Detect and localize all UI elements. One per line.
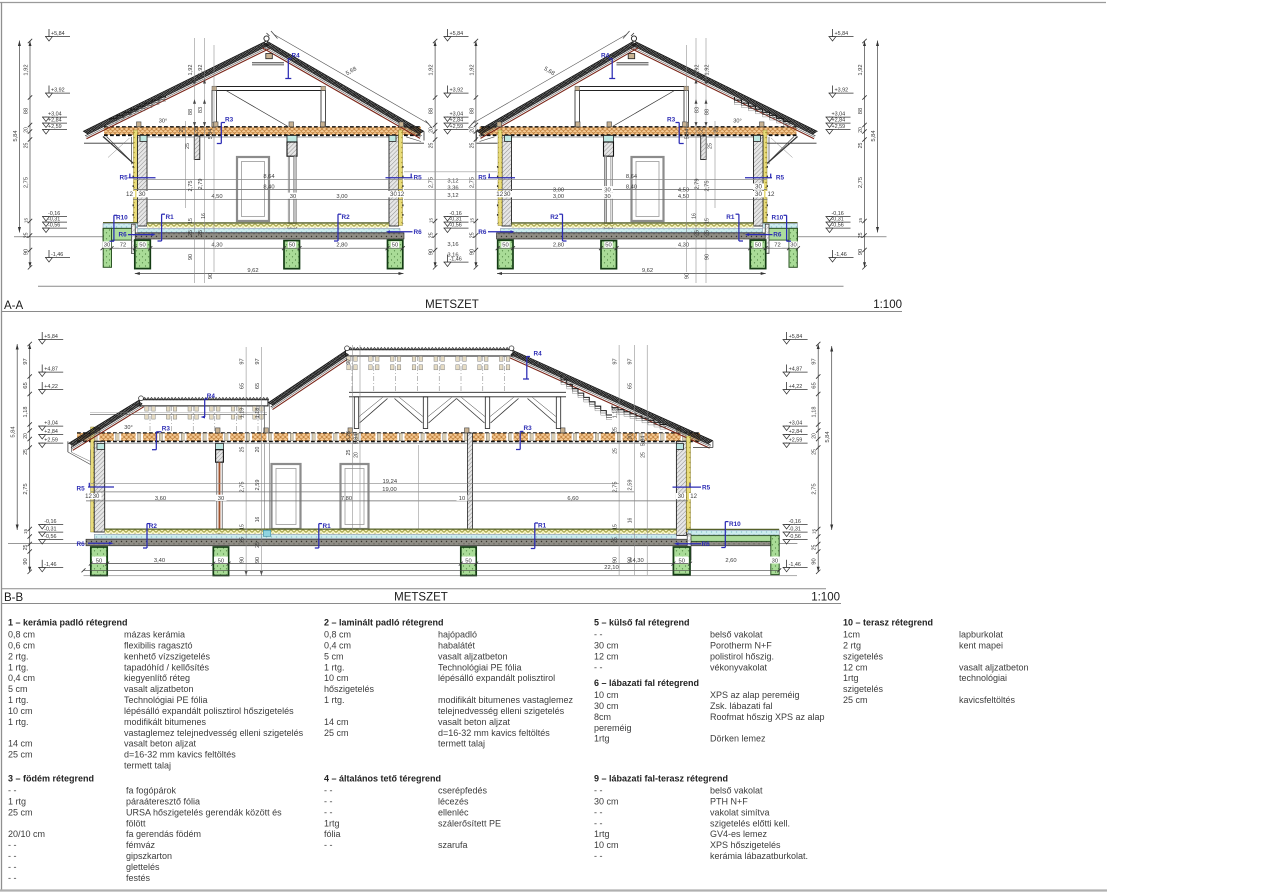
svg-text:- -: - - (8, 840, 17, 850)
svg-text:1 rtg.: 1 rtg. (324, 695, 345, 705)
svg-text:- -: - - (8, 873, 17, 883)
svg-text:R4: R4 (534, 350, 543, 357)
svg-text:Technológiai PE fólia: Technológiai PE fólia (438, 662, 522, 672)
svg-text:2,75: 2,75 (23, 177, 29, 188)
svg-text:R1: R1 (166, 214, 175, 221)
svg-text:R6: R6 (773, 232, 782, 239)
svg-text:25: 25 (812, 545, 818, 551)
svg-text:URSA hőszigetelés gerendák köz: URSA hőszigetelés gerendák között és (126, 807, 282, 817)
svg-text:3,12: 3,12 (447, 193, 458, 199)
svg-text:pereméig: pereméig (594, 723, 632, 733)
svg-text:50: 50 (139, 243, 145, 249)
svg-text:10 cm: 10 cm (324, 673, 349, 683)
svg-text:1rtg: 1rtg (594, 734, 610, 744)
svg-text:97: 97 (812, 358, 818, 364)
svg-text:3,00: 3,00 (336, 194, 347, 200)
svg-text:25 cm: 25 cm (8, 807, 33, 817)
svg-text:30: 30 (104, 243, 110, 249)
svg-text:R10: R10 (772, 215, 784, 222)
svg-text:2,60: 2,60 (725, 558, 736, 564)
svg-text:vasalt aljzatbeton: vasalt aljzatbeton (959, 662, 1029, 672)
svg-text:5,84: 5,84 (208, 129, 214, 140)
svg-text:R1: R1 (538, 523, 547, 530)
svg-text:19,24: 19,24 (383, 479, 398, 485)
svg-text:16: 16 (201, 213, 207, 219)
svg-text:15: 15 (613, 524, 619, 530)
svg-text:16: 16 (628, 518, 634, 524)
svg-text:90: 90 (23, 249, 29, 255)
svg-text:-1,46: -1,46 (51, 252, 63, 258)
svg-text:2,79: 2,79 (198, 179, 204, 190)
svg-text:25: 25 (240, 447, 246, 453)
svg-text:technológiai: technológiai (959, 673, 1007, 683)
svg-text:25: 25 (707, 143, 713, 149)
svg-text:15: 15 (429, 218, 435, 224)
svg-text:30 cm: 30 cm (594, 796, 619, 806)
svg-text:25: 25 (613, 427, 619, 433)
svg-text:20: 20 (23, 433, 29, 439)
svg-text:50: 50 (392, 243, 398, 249)
svg-text:25: 25 (255, 542, 261, 548)
svg-text:PTH N+F: PTH N+F (710, 796, 748, 806)
svg-text:25: 25 (613, 537, 619, 543)
svg-text:25 cm: 25 cm (843, 695, 868, 705)
svg-text:6,60: 6,60 (567, 496, 578, 502)
svg-text:25: 25 (23, 232, 29, 238)
svg-text:cserépfedés: cserépfedés (438, 786, 488, 796)
svg-text:90: 90 (685, 273, 691, 279)
svg-text:R5: R5 (120, 174, 129, 181)
svg-text:20: 20 (858, 127, 864, 133)
svg-text:20/10 cm: 20/10 cm (8, 829, 45, 839)
svg-text:1 rtg: 1 rtg (8, 796, 26, 806)
svg-text:97: 97 (240, 358, 246, 364)
svg-text:belső vakolat: belső vakolat (710, 786, 763, 796)
svg-text:90: 90 (613, 557, 619, 563)
svg-text:4,30: 4,30 (678, 243, 689, 249)
svg-text:88: 88 (858, 108, 864, 114)
svg-text:12 cm: 12 cm (594, 651, 619, 661)
svg-text:R3: R3 (225, 116, 234, 123)
svg-text:- -: - - (594, 851, 603, 861)
svg-text:1rtg: 1rtg (594, 829, 610, 839)
svg-text:4,50: 4,50 (678, 194, 689, 200)
svg-text:R5: R5 (702, 485, 711, 492)
svg-text:modifikált bitumenes: modifikált bitumenes (124, 717, 207, 727)
svg-text:50: 50 (755, 243, 761, 249)
svg-text:4,50: 4,50 (678, 187, 689, 193)
svg-text:B-B: B-B (4, 592, 24, 604)
svg-text:kavicsfeltöltés: kavicsfeltöltés (959, 695, 1016, 705)
svg-text:30: 30 (290, 194, 296, 200)
svg-text:0,6 cm: 0,6 cm (8, 640, 35, 650)
svg-text:Dörken lemez: Dörken lemez (710, 734, 766, 744)
svg-text:+2,59: +2,59 (789, 438, 803, 444)
svg-text:2,75: 2,75 (812, 483, 818, 494)
svg-text:0,4 cm: 0,4 cm (8, 673, 35, 683)
svg-text:5,84: 5,84 (13, 130, 19, 142)
svg-text:Zsk. lábazati fal: Zsk. lábazati fal (710, 701, 773, 711)
svg-text:30: 30 (755, 184, 762, 191)
svg-text:97: 97 (346, 358, 352, 364)
svg-text:R6: R6 (478, 229, 487, 236)
svg-text:10: 10 (459, 496, 465, 502)
svg-text:1 rtg.: 1 rtg. (324, 662, 345, 672)
svg-text:R6: R6 (77, 541, 86, 548)
svg-text:15: 15 (23, 529, 29, 535)
svg-text:88: 88 (188, 109, 194, 115)
svg-text:- -: - - (324, 796, 333, 806)
svg-text:kiegyenlítő réteg: kiegyenlítő réteg (124, 673, 190, 683)
svg-text:2,80: 2,80 (553, 243, 564, 249)
svg-text:2,75: 2,75 (188, 181, 194, 192)
svg-text:2,75: 2,75 (613, 482, 619, 493)
svg-text:R5: R5 (414, 174, 423, 181)
svg-text:R2: R2 (342, 214, 351, 221)
svg-text:- -: - - (8, 786, 17, 796)
svg-text:90: 90 (469, 249, 475, 255)
svg-text:72: 72 (120, 243, 126, 249)
svg-text:+3,92: +3,92 (835, 88, 849, 94)
svg-text:1,92: 1,92 (469, 64, 475, 75)
svg-text:+2,59: +2,59 (44, 438, 58, 444)
svg-text:2,80: 2,80 (336, 243, 347, 249)
svg-text:+2,84: +2,84 (48, 118, 62, 124)
svg-text:-1,46: -1,46 (835, 252, 847, 258)
svg-text:1,92: 1,92 (198, 65, 204, 76)
svg-text:szigetelés: szigetelés (843, 651, 884, 661)
svg-text:25: 25 (198, 230, 204, 236)
svg-text:- -: - - (594, 662, 603, 672)
svg-text:3,00: 3,00 (553, 187, 564, 193)
svg-text:5 cm: 5 cm (8, 684, 28, 694)
svg-text:2,59: 2,59 (628, 480, 634, 491)
svg-text:5,25: 5,25 (346, 431, 352, 441)
svg-text:16: 16 (255, 517, 261, 523)
svg-text:kenhető vízszigetelés: kenhető vízszigetelés (124, 651, 211, 661)
svg-text:Technológiai PE fólia: Technológiai PE fólia (124, 695, 208, 705)
svg-text:88: 88 (23, 108, 29, 114)
svg-text:vastaglemez telejnedvesség ell: vastaglemez telejnedvesség elleni sziget… (124, 728, 304, 738)
svg-text:30: 30 (93, 494, 100, 500)
svg-text:20: 20 (628, 434, 634, 440)
svg-text:12: 12 (690, 494, 697, 500)
svg-text:8,40: 8,40 (263, 185, 274, 191)
svg-text:5,25: 5,25 (194, 126, 200, 136)
svg-text:9 – lábazati fal-terasz réteg: 9 – lábazati fal-terasz rétegrend (594, 774, 728, 784)
svg-text:1,92: 1,92 (429, 64, 435, 75)
svg-text:3,60: 3,60 (155, 496, 166, 502)
svg-text:90: 90 (208, 273, 214, 279)
svg-text:R4: R4 (292, 53, 301, 60)
svg-text:3,16: 3,16 (447, 242, 458, 248)
svg-text:20: 20 (812, 433, 818, 439)
svg-text:+5,84: +5,84 (44, 334, 58, 340)
svg-text:4 – általános tető téregrend: 4 – általános tető téregrend (324, 774, 441, 784)
svg-text:1:100: 1:100 (873, 299, 902, 311)
svg-text:fólia: fólia (324, 829, 341, 839)
svg-text:5,84: 5,84 (871, 130, 877, 142)
svg-text:+4,22: +4,22 (44, 384, 58, 390)
svg-text:d=16-32 mm kavics feltöltés: d=16-32 mm kavics feltöltés (124, 750, 236, 760)
svg-text:R1: R1 (726, 214, 735, 221)
svg-text:termett talaj: termett talaj (438, 739, 485, 749)
svg-text:90: 90 (812, 558, 818, 564)
svg-text:vékonyvakolat: vékonyvakolat (710, 662, 768, 672)
svg-text:25: 25 (812, 449, 818, 455)
svg-text:telejnedvesség elleni szigetel: telejnedvesség elleni szigetelés (438, 706, 565, 716)
svg-text:12: 12 (397, 191, 404, 198)
svg-text:2,79: 2,79 (694, 179, 700, 190)
svg-text:25: 25 (858, 143, 864, 149)
svg-text:- -: - - (324, 786, 333, 796)
svg-text:30: 30 (678, 494, 685, 500)
svg-text:szarufa: szarufa (438, 840, 468, 850)
svg-text:90: 90 (255, 557, 261, 563)
svg-text:2 – laminált padló rétegrend: 2 – laminált padló rétegrend (324, 618, 444, 628)
svg-text:2,75: 2,75 (240, 482, 246, 493)
svg-text:30: 30 (755, 191, 762, 198)
svg-text:tapadóhíd / kellősítés: tapadóhíd / kellősítés (124, 662, 210, 672)
svg-text:-0,31: -0,31 (44, 527, 56, 533)
svg-text:5,25: 5,25 (698, 126, 704, 136)
svg-text:15: 15 (704, 218, 710, 224)
svg-text:20: 20 (429, 127, 435, 133)
svg-text:2 rtg.: 2 rtg. (8, 651, 29, 661)
svg-text:szigetelés előtti kell.: szigetelés előtti kell. (710, 818, 790, 828)
svg-text:-0,56: -0,56 (832, 223, 844, 229)
svg-text:flexibilis ragasztó: flexibilis ragasztó (124, 640, 193, 650)
svg-text:65: 65 (240, 383, 246, 389)
svg-text:R3: R3 (162, 426, 171, 433)
svg-text:vasalt beton aljzat: vasalt beton aljzat (438, 717, 511, 727)
svg-text:d=16-32 mm kavics feltöltés: d=16-32 mm kavics feltöltés (438, 728, 550, 738)
svg-text:-0,16: -0,16 (789, 519, 801, 525)
svg-text:R10: R10 (729, 521, 741, 528)
svg-text:3,12: 3,12 (447, 178, 458, 184)
svg-text:25: 25 (469, 232, 475, 238)
svg-text:72: 72 (774, 243, 780, 249)
svg-text:20: 20 (255, 447, 261, 453)
svg-text:3 – födém rétegrend: 3 – födém rétegrend (8, 774, 94, 784)
svg-text:19,00: 19,00 (382, 487, 397, 493)
svg-text:9,62: 9,62 (642, 268, 653, 274)
svg-text:30°: 30° (124, 425, 132, 431)
svg-text:15: 15 (812, 529, 818, 535)
svg-text:90: 90 (858, 249, 864, 255)
svg-text:25: 25 (188, 230, 194, 236)
svg-text:szálerősített PE: szálerősített PE (438, 818, 501, 828)
svg-text:Roofmat hőszig XPS az alap: Roofmat hőszig XPS az alap (710, 712, 825, 722)
svg-text:+5,84: +5,84 (51, 31, 65, 37)
svg-text:vasalt aljzatbeton: vasalt aljzatbeton (124, 684, 194, 694)
svg-text:0,8 cm: 0,8 cm (324, 630, 351, 640)
svg-text:1,18: 1,18 (255, 408, 261, 419)
svg-text:XPS hőszigetelés: XPS hőszigetelés (710, 840, 781, 850)
svg-text:R5: R5 (776, 174, 785, 181)
svg-text:30: 30 (772, 558, 778, 564)
svg-text:+2,59: +2,59 (450, 124, 464, 130)
svg-text:30 cm: 30 cm (594, 640, 619, 650)
svg-text:+3,04: +3,04 (789, 421, 803, 427)
svg-text:R6: R6 (702, 541, 711, 548)
svg-text:-1,46: -1,46 (450, 257, 462, 263)
svg-text:+5,84: +5,84 (450, 31, 464, 37)
svg-text:20: 20 (353, 452, 359, 458)
svg-text:10 cm: 10 cm (594, 690, 619, 700)
svg-text:vasalt beton aljzat: vasalt beton aljzat (124, 739, 197, 749)
svg-text:90: 90 (23, 558, 29, 564)
svg-text:1,92: 1,92 (704, 65, 710, 76)
svg-text:hőszigetelés: hőszigetelés (324, 684, 375, 694)
svg-text:88: 88 (429, 108, 435, 114)
svg-text:- -: - - (8, 862, 17, 872)
svg-text:+4,22: +4,22 (789, 384, 803, 390)
svg-text:30 cm: 30 cm (594, 701, 619, 711)
svg-text:-0,56: -0,56 (48, 223, 60, 229)
svg-text:12: 12 (768, 191, 775, 198)
svg-text:R5: R5 (478, 174, 487, 181)
svg-text:modifikált bitumenes vastaglem: modifikált bitumenes vastaglemez (438, 695, 574, 705)
svg-text:20: 20 (23, 127, 29, 133)
svg-text:A-A: A-A (4, 300, 24, 312)
svg-text:+2,84: +2,84 (789, 429, 803, 435)
svg-text:15: 15 (858, 218, 864, 224)
svg-text:fa fogópárok: fa fogópárok (126, 786, 177, 796)
svg-text:-0,16: -0,16 (44, 519, 56, 525)
svg-text:12 cm: 12 cm (843, 662, 868, 672)
svg-text:0,4 cm: 0,4 cm (324, 640, 351, 650)
svg-text:METSZET: METSZET (394, 592, 448, 604)
svg-text:25: 25 (641, 452, 647, 458)
svg-text:kent mapei: kent mapei (959, 640, 1003, 650)
svg-text:- -: - - (324, 807, 333, 817)
svg-text:kerámia lábazatburkolat.: kerámia lábazatburkolat. (710, 851, 808, 861)
svg-text:50: 50 (289, 243, 295, 249)
svg-text:7,80: 7,80 (341, 496, 352, 502)
svg-text:25: 25 (23, 545, 29, 551)
svg-text:97: 97 (613, 358, 619, 364)
svg-text:1,18: 1,18 (23, 407, 29, 418)
svg-text:+2,84: +2,84 (832, 118, 846, 124)
svg-text:- -: - - (594, 807, 603, 817)
svg-text:2,75: 2,75 (23, 483, 29, 494)
svg-text:belső vakolat: belső vakolat (710, 630, 763, 640)
svg-text:R6: R6 (414, 229, 423, 236)
svg-text:30°: 30° (733, 118, 741, 124)
svg-text:30: 30 (504, 191, 511, 198)
svg-text:5,84: 5,84 (353, 434, 359, 445)
svg-text:- -: - - (594, 818, 603, 828)
svg-text:2,59: 2,59 (255, 480, 261, 491)
svg-text:festés: festés (126, 873, 151, 883)
svg-text:XPS az alap pereméig: XPS az alap pereméig (710, 690, 800, 700)
svg-text:2,75: 2,75 (469, 177, 475, 188)
svg-text:20: 20 (469, 127, 475, 133)
svg-text:3,36: 3,36 (447, 186, 458, 192)
svg-text:habalátét: habalátét (438, 640, 476, 650)
svg-text:1 rtg.: 1 rtg. (8, 695, 29, 705)
svg-text:2 rtg: 2 rtg (843, 640, 861, 650)
svg-text:-0,31: -0,31 (789, 527, 801, 533)
svg-text:3,40: 3,40 (154, 558, 165, 564)
svg-text:30: 30 (604, 187, 610, 193)
svg-text:5 – külső fal rétegrend: 5 – külső fal rétegrend (594, 618, 690, 628)
svg-text:12: 12 (85, 494, 92, 500)
svg-text:1,13: 1,13 (240, 408, 246, 419)
svg-text:-1,46: -1,46 (789, 562, 801, 568)
svg-text:vasalt aljzatbeton: vasalt aljzatbeton (438, 651, 508, 661)
svg-text:+4,87: +4,87 (789, 367, 803, 373)
svg-text:2,75: 2,75 (858, 177, 864, 188)
svg-text:14 cm: 14 cm (8, 739, 33, 749)
svg-text:65: 65 (812, 382, 818, 388)
svg-text:lépésálló expandált polisztiro: lépésálló expandált polisztirol hősziget… (124, 706, 294, 716)
svg-text:25: 25 (704, 230, 710, 236)
svg-text:lécezés: lécezés (438, 796, 469, 806)
svg-text:1,92: 1,92 (188, 65, 194, 76)
svg-text:5,84: 5,84 (825, 431, 831, 443)
svg-text:65: 65 (23, 382, 29, 388)
svg-text:+5,84: +5,84 (789, 334, 803, 340)
svg-text:- -: - - (8, 851, 17, 861)
svg-text:5 cm: 5 cm (324, 651, 344, 661)
svg-text:5,84: 5,84 (11, 426, 17, 438)
svg-text:fémváz: fémváz (126, 840, 156, 850)
svg-text:ellenléc: ellenléc (438, 807, 469, 817)
svg-text:hajópadló: hajópadló (438, 630, 477, 640)
svg-text:-0,56: -0,56 (789, 534, 801, 540)
svg-text:1cm: 1cm (843, 630, 860, 640)
svg-text:0,8 cm: 0,8 cm (8, 630, 35, 640)
svg-text:8cm: 8cm (594, 712, 611, 722)
svg-text:15: 15 (23, 218, 29, 224)
svg-text:GV4-es lemez: GV4-es lemez (710, 829, 768, 839)
svg-text:-1,46: -1,46 (44, 562, 56, 568)
svg-text:15: 15 (188, 218, 194, 224)
svg-text:6 – lábazati fal rétegrend: 6 – lábazati fal rétegrend (594, 678, 699, 688)
svg-text:83: 83 (198, 107, 204, 113)
svg-text:97: 97 (23, 358, 29, 364)
svg-text:25: 25 (694, 230, 700, 236)
svg-text:1:100: 1:100 (811, 592, 840, 604)
svg-text:97: 97 (255, 358, 261, 364)
svg-text:5,84: 5,84 (641, 436, 647, 447)
svg-text:12: 12 (126, 191, 133, 198)
svg-text:25: 25 (469, 143, 475, 149)
svg-text:30: 30 (139, 191, 146, 198)
svg-text:65: 65 (255, 383, 261, 389)
svg-text:25: 25 (23, 143, 29, 149)
svg-text:+4,87: +4,87 (44, 367, 58, 373)
svg-text:90: 90 (188, 254, 194, 260)
svg-text:glettelés: glettelés (126, 862, 160, 872)
svg-text:25: 25 (23, 449, 29, 455)
svg-text:2,75: 2,75 (704, 181, 710, 192)
svg-text:+2,84: +2,84 (450, 118, 464, 124)
svg-text:R3: R3 (667, 116, 676, 123)
svg-text:gipszkarton: gipszkarton (126, 851, 172, 861)
svg-text:R4: R4 (601, 53, 610, 60)
svg-text:3,00: 3,00 (553, 194, 564, 200)
svg-text:12: 12 (496, 191, 503, 198)
svg-text:METSZET: METSZET (425, 299, 479, 311)
svg-text:-0,56: -0,56 (450, 223, 462, 229)
svg-text:fa gerendás födém: fa gerendás födém (126, 829, 201, 839)
svg-text:97: 97 (628, 358, 634, 364)
svg-text:vakolat simítva: vakolat simítva (710, 807, 770, 817)
svg-text:25: 25 (429, 143, 435, 149)
